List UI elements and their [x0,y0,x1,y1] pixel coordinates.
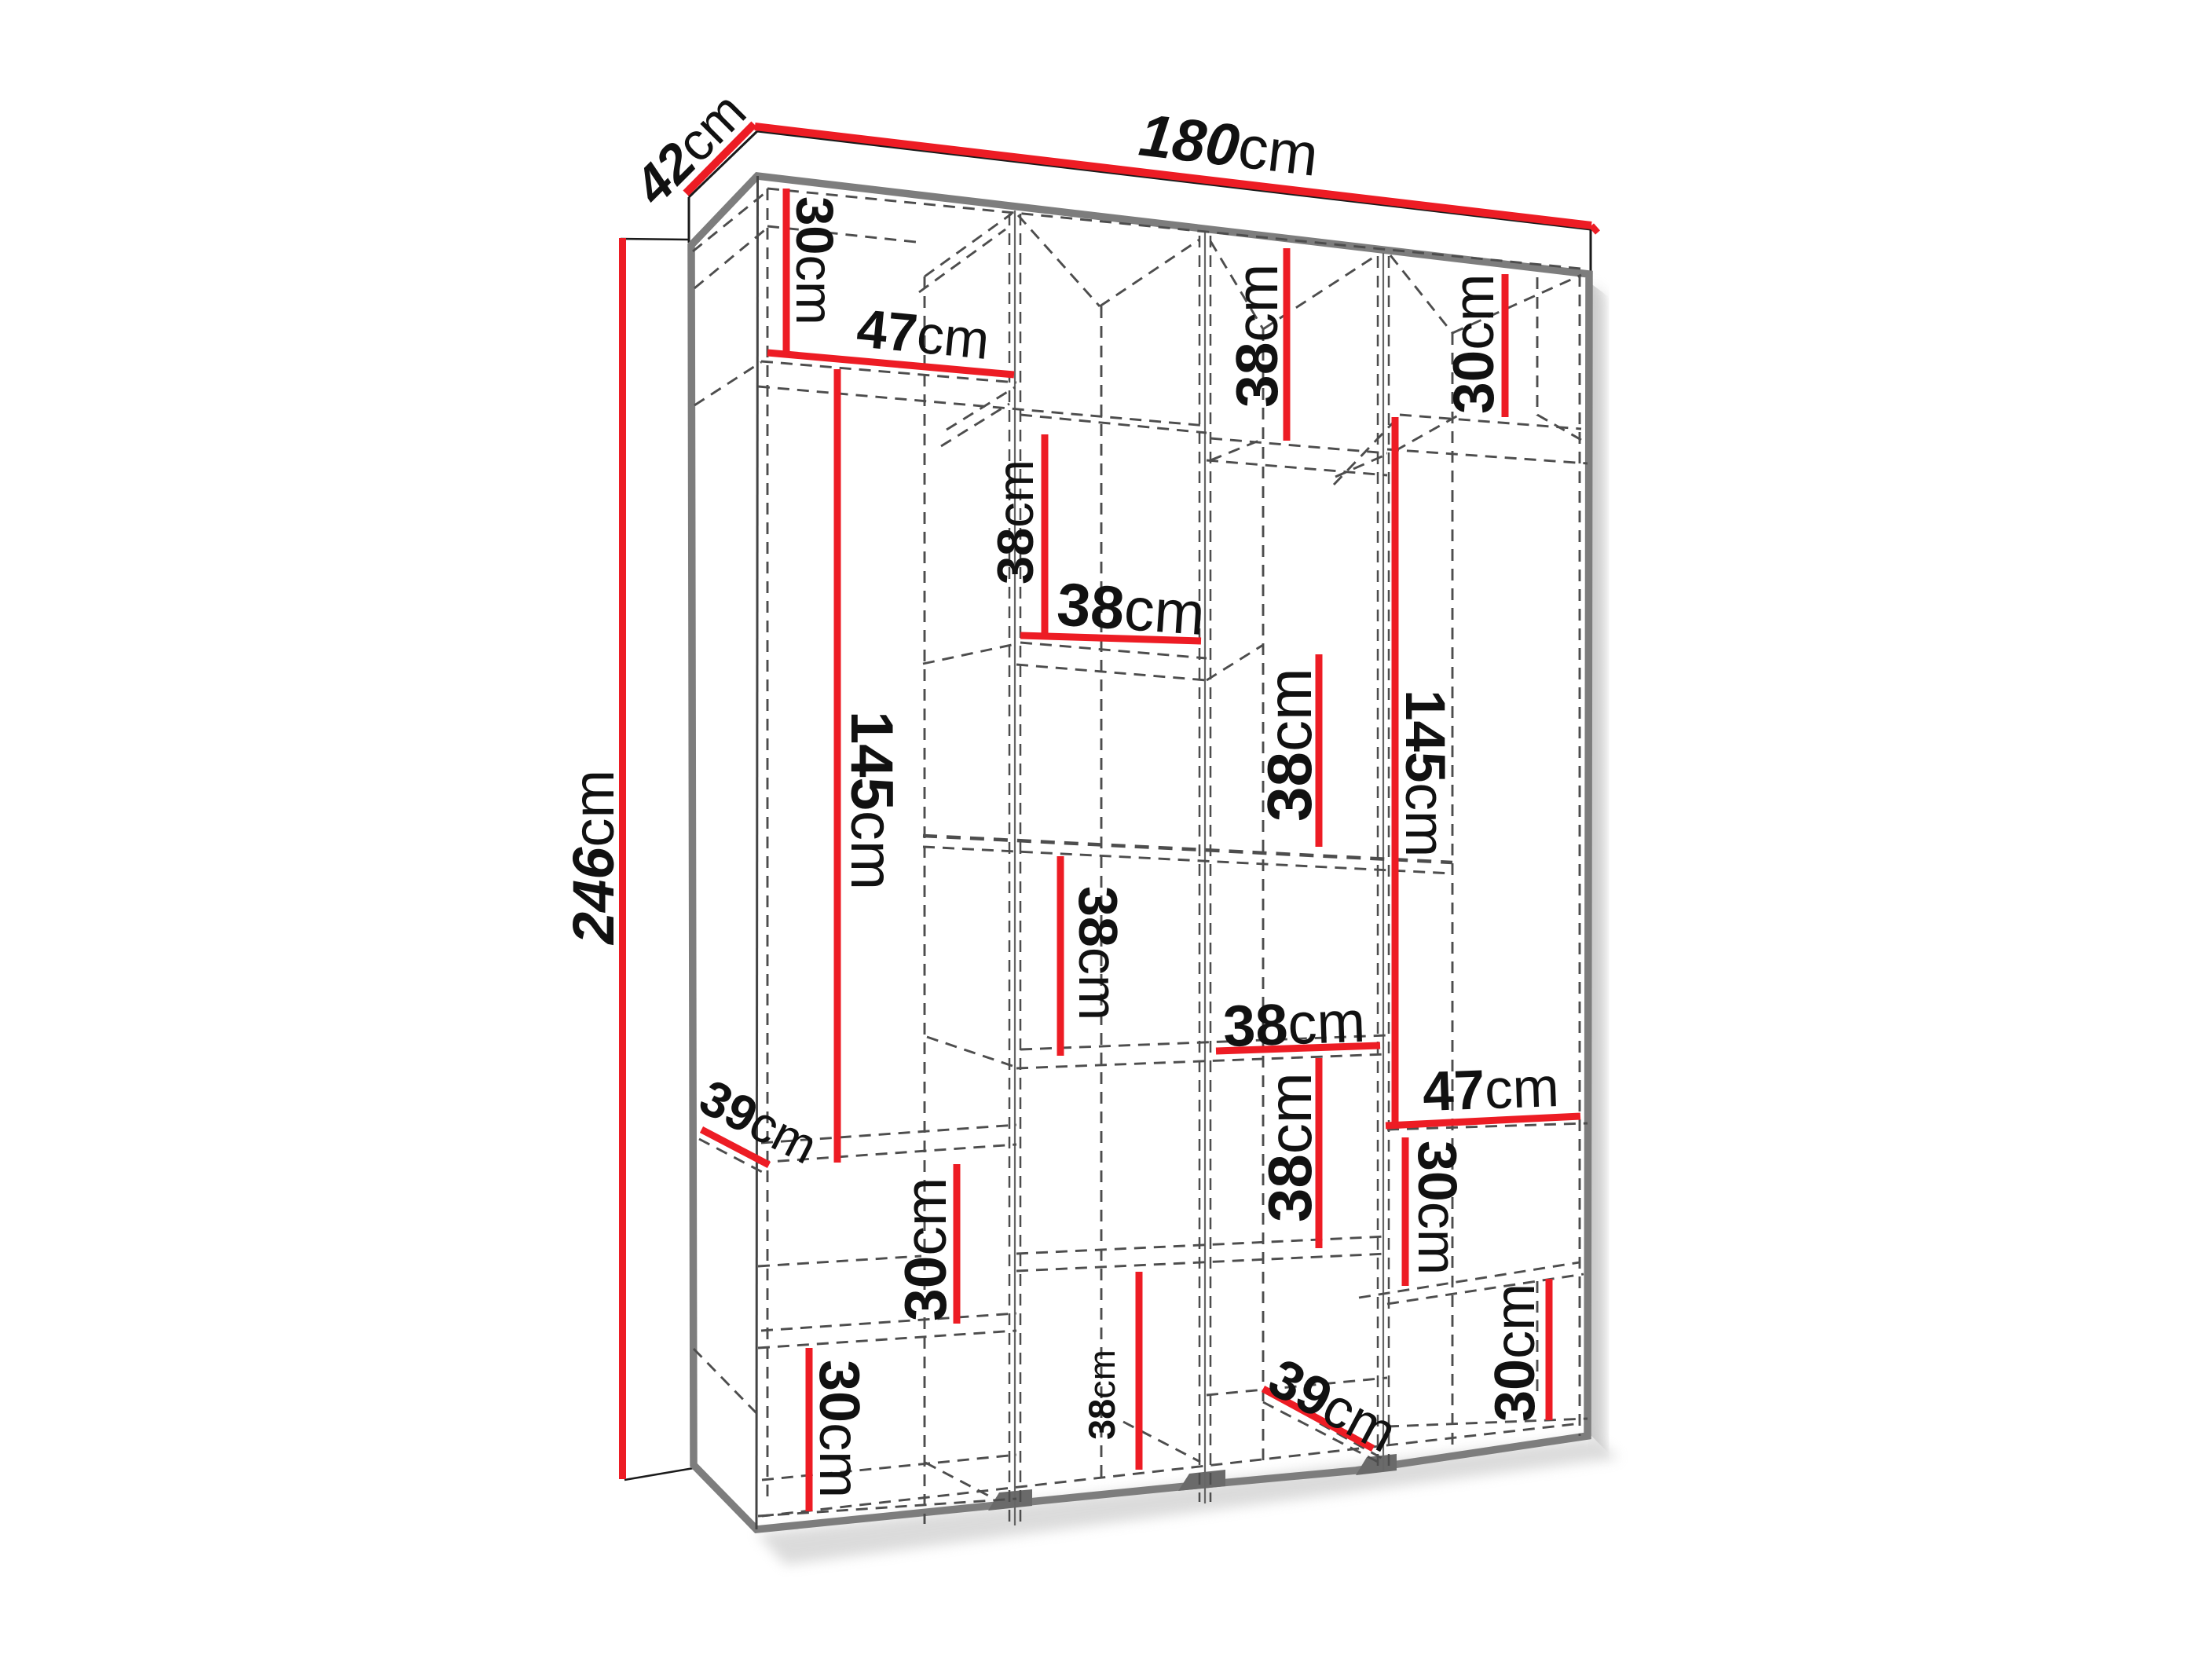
svg-text:30cm: 30cm [785,196,844,325]
svg-text:38cm: 38cm [1055,570,1207,648]
svg-text:246cm: 246cm [561,770,626,946]
svg-text:145cm: 145cm [838,711,905,890]
svg-text:47cm: 47cm [855,298,992,371]
svg-text:47cm: 47cm [1422,1057,1560,1123]
svg-text:145cm: 145cm [1393,690,1456,857]
svg-text:30cm: 30cm [892,1177,958,1321]
svg-text:39cm: 39cm [1259,1346,1407,1463]
svg-text:30cm: 30cm [1484,1284,1547,1422]
svg-text:30cm: 30cm [1407,1141,1468,1275]
svg-text:38cm: 38cm [1068,886,1129,1020]
svg-text:38cm: 38cm [1254,668,1324,822]
svg-text:30cm: 30cm [808,1360,870,1498]
svg-text:38cm: 38cm [1081,1350,1122,1440]
svg-text:38cm: 38cm [987,460,1044,584]
svg-text:38cm: 38cm [1222,989,1367,1059]
svg-text:30cm: 30cm [1442,273,1506,414]
svg-text:38cm: 38cm [1255,1072,1324,1222]
svg-text:38cm: 38cm [1224,264,1290,408]
